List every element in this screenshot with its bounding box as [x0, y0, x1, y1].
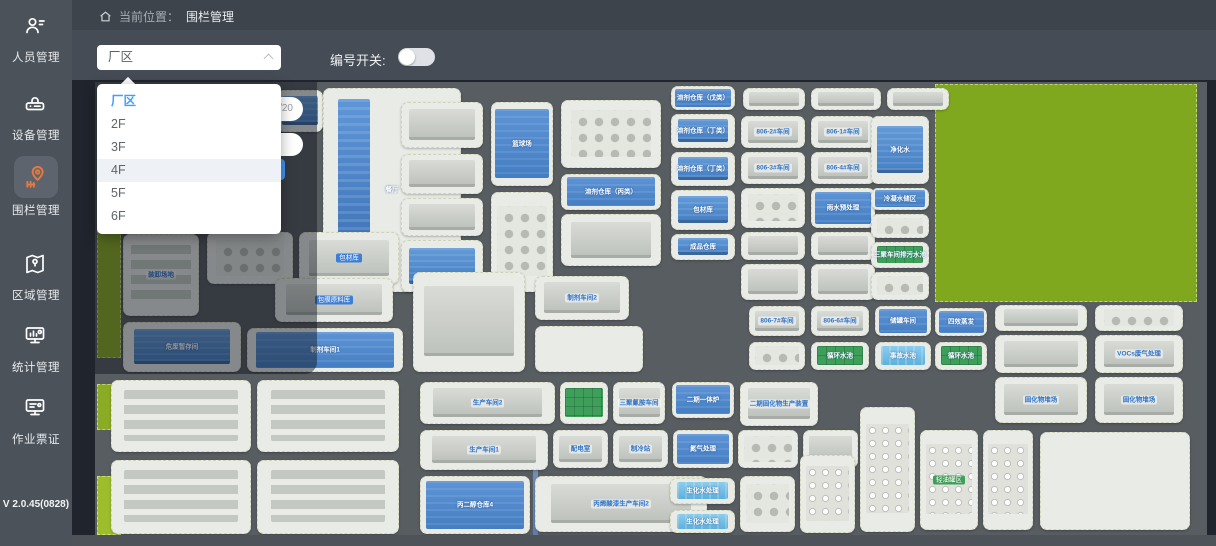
building	[497, 206, 546, 277]
building	[755, 311, 799, 331]
building	[877, 246, 923, 263]
building	[939, 311, 984, 333]
building	[815, 192, 871, 224]
building	[746, 484, 789, 523]
map-plot[interactable]	[740, 476, 795, 532]
building	[1004, 341, 1078, 367]
building	[677, 482, 729, 499]
map-plot[interactable]	[860, 407, 915, 532]
building	[675, 89, 731, 108]
map-plot-806-2#车间[interactable]: 806-2#车间	[741, 116, 805, 148]
sidebar-item-label: 统计管理	[0, 359, 72, 375]
building	[271, 390, 386, 440]
map-plot[interactable]	[257, 380, 399, 452]
building	[565, 388, 603, 417]
map-plot[interactable]	[995, 305, 1087, 331]
map-plot-储罐车间[interactable]: 储罐车间	[875, 306, 931, 336]
map-plot[interactable]	[561, 214, 661, 266]
building	[941, 346, 982, 365]
map-plot[interactable]	[1040, 432, 1190, 530]
number-switch-label: 编号开关:	[330, 50, 386, 69]
stats-monitor-icon	[23, 324, 49, 350]
building	[817, 311, 863, 331]
building	[1104, 384, 1175, 416]
building	[818, 157, 869, 179]
floor-dropdown-menu: 厂区2F3F4F5F6F	[97, 84, 281, 234]
dropdown-option-5F[interactable]: 5F	[97, 182, 281, 205]
building	[677, 514, 729, 529]
map-plot-成品仓库[interactable]: 成品仓库	[671, 234, 735, 260]
sidebar-item-统计管理[interactable]: 统计管理	[0, 324, 72, 375]
building	[1004, 384, 1078, 416]
map-plot-溶剂仓库（戊类）[interactable]: 溶剂仓库（戊类）	[671, 86, 735, 110]
dropdown-option-厂区[interactable]: 厂区	[97, 90, 281, 113]
building	[678, 196, 729, 223]
building	[619, 436, 662, 462]
map-plot-循环水池[interactable]: 循环水池	[811, 342, 869, 370]
map-plot[interactable]	[887, 88, 949, 110]
building	[875, 190, 925, 207]
sidebar-item-label: 区域管理	[0, 287, 72, 303]
fence-pin-icon	[23, 164, 49, 190]
sidebar-item-围栏管理[interactable]: 围栏管理	[0, 156, 72, 218]
map-plot[interactable]	[401, 198, 483, 236]
building	[881, 346, 925, 365]
building	[1104, 341, 1175, 367]
map-plot-轻油罐区[interactable]: 轻油罐区	[920, 430, 978, 530]
sidebar-item-label: 围栏管理	[0, 202, 72, 218]
map-plot[interactable]	[111, 380, 251, 452]
breadcrumb-prefix: 当前位置：	[119, 8, 179, 25]
building	[748, 194, 799, 221]
map-plot[interactable]	[1095, 305, 1183, 331]
building	[678, 238, 729, 255]
map-plot[interactable]	[871, 214, 929, 238]
building	[748, 236, 799, 255]
building	[818, 121, 869, 143]
map-plot-制剂车间2[interactable]: 制剂车间2	[535, 276, 629, 320]
building	[877, 126, 923, 174]
device-icon	[23, 92, 49, 118]
map-plot[interactable]	[741, 188, 805, 228]
map-plot-二期固化物生产装置[interactable]: 二期固化物生产装置	[740, 382, 818, 426]
version-label: V 2.0.45(0828)	[0, 499, 72, 510]
building	[818, 236, 869, 255]
sidebar-item-人员管理[interactable]: 人员管理	[0, 14, 72, 65]
dropdown-option-6F[interactable]: 6F	[97, 205, 281, 228]
building	[676, 385, 730, 414]
map-plot-氮气处理[interactable]: 氮气处理	[673, 430, 733, 468]
map-plot-包材库[interactable]: 包材库	[671, 190, 735, 230]
active-item-tile	[14, 156, 58, 198]
number-toggle-switch[interactable]	[398, 48, 435, 66]
map-plot-雨水预处理[interactable]: 雨水预处理	[811, 188, 875, 228]
person-icon	[23, 14, 49, 40]
building	[571, 110, 651, 158]
building	[124, 470, 237, 522]
map-plot-丙二醇仓库4[interactable]: 丙二醇仓库4	[420, 476, 530, 534]
map-plot[interactable]	[111, 460, 251, 534]
map-plot-生产车间1[interactable]: 生产车间1	[420, 430, 548, 470]
map-plot[interactable]	[811, 88, 881, 110]
building	[748, 269, 799, 294]
map-plot-806-7#车间[interactable]: 806-7#车间	[749, 306, 805, 336]
map-plot-生产车间2[interactable]: 生产车间2	[420, 382, 555, 424]
map-plot-二期一体炉[interactable]: 二期一体炉	[672, 382, 734, 418]
building	[309, 240, 389, 276]
map-plot-固化物堆场[interactable]: 固化物堆场	[1095, 377, 1183, 423]
building	[619, 388, 660, 417]
sidebar-item-label: 设备管理	[0, 127, 72, 143]
building	[495, 109, 549, 179]
dropdown-option-4F[interactable]: 4F	[97, 159, 281, 182]
building	[678, 157, 729, 180]
top-bar: 当前位置： 围栏管理 厂区 编号开关:	[72, 0, 1216, 80]
building	[806, 466, 849, 521]
building	[409, 204, 475, 230]
map-plot[interactable]	[800, 455, 855, 533]
toggle-knob	[399, 49, 415, 65]
map-plot-溶剂仓库（丁类）[interactable]: 溶剂仓库（丁类）	[671, 152, 735, 186]
building	[567, 177, 655, 206]
map-plot[interactable]	[811, 264, 875, 300]
sidebar-item-设备管理[interactable]: 设备管理	[0, 92, 72, 143]
map-plot[interactable]	[401, 102, 483, 148]
map-plot-溶剂仓库（丙类）[interactable]: 溶剂仓库（丙类）	[561, 174, 661, 210]
building	[1004, 309, 1078, 326]
building	[571, 222, 651, 258]
map-area-icon	[23, 252, 49, 278]
breadcrumb: 当前位置： 围栏管理	[99, 8, 234, 24]
map-plot[interactable]	[983, 430, 1033, 530]
map-plot[interactable]	[811, 232, 875, 260]
map-plot-VOCs废气处理[interactable]: VOCs废气处理	[1095, 335, 1183, 373]
map-plot[interactable]	[535, 326, 643, 372]
grass-area	[935, 84, 1197, 302]
building	[409, 160, 475, 187]
map-bottom-strip	[72, 535, 1216, 546]
map-plot[interactable]	[871, 272, 929, 300]
building	[559, 436, 602, 462]
map-plot[interactable]	[561, 100, 661, 168]
building	[755, 346, 799, 365]
map-plot[interactable]	[741, 264, 805, 300]
dropdown-option-2F[interactable]: 2F	[97, 113, 281, 136]
sidebar-item-label: 人员管理	[0, 49, 72, 65]
map-plot[interactable]	[995, 335, 1087, 373]
building	[893, 92, 942, 106]
building	[748, 388, 810, 418]
sidebar-item-label: 作业票证	[0, 431, 72, 447]
map-plot-三聚氰胺车间[interactable]: 三聚氰胺车间	[613, 382, 665, 424]
building	[749, 92, 798, 106]
map-plot-循环水池[interactable]: 循环水池	[935, 342, 987, 370]
building	[817, 346, 863, 365]
map-plot[interactable]	[741, 232, 805, 260]
map-plot-事故水池[interactable]: 事故水池	[875, 342, 931, 370]
chevron-up-icon	[264, 54, 274, 64]
building	[424, 286, 514, 357]
building	[271, 470, 386, 522]
map-plot[interactable]	[560, 382, 608, 424]
building	[879, 309, 928, 333]
map-plot-806-1#车间[interactable]: 806-1#车间	[811, 116, 875, 148]
sidebar-item-区域管理[interactable]: 区域管理	[0, 252, 72, 303]
breadcrumb-current: 围栏管理	[186, 8, 234, 25]
floor-select-value: 厂区	[108, 50, 133, 64]
map-plot-溶剂仓库（丁类）[interactable]: 溶剂仓库（丁类）	[671, 114, 735, 148]
breadcrumb-row	[72, 0, 1216, 30]
map-plot[interactable]	[749, 342, 805, 370]
building	[678, 119, 729, 142]
map-plot-生化水处理[interactable]: 生化水处理	[670, 478, 735, 504]
building	[818, 269, 869, 294]
building	[866, 424, 909, 513]
map-plot-制冷站[interactable]: 制冷站	[613, 430, 668, 468]
building	[426, 481, 523, 529]
map-plot-806-4#车间[interactable]: 806-4#车间	[811, 152, 875, 184]
map-plot-净化水[interactable]: 净化水	[871, 116, 929, 184]
building	[748, 157, 799, 179]
building	[409, 109, 475, 141]
dropdown-option-3F[interactable]: 3F	[97, 136, 281, 159]
map-plot[interactable]	[257, 460, 399, 534]
building	[744, 436, 792, 462]
map-plot-806-6#车间[interactable]: 806-6#车间	[811, 306, 869, 336]
building	[877, 218, 923, 234]
building	[988, 444, 1027, 515]
map-plot-篮球场[interactable]: 篮球场	[491, 102, 553, 186]
map-plot-四效蒸发[interactable]: 四效蒸发	[935, 308, 987, 336]
permit-monitor-icon	[23, 396, 49, 422]
map-plot[interactable]	[401, 154, 483, 194]
map-plot-生化水处理[interactable]: 生化水处理	[670, 510, 735, 533]
building	[544, 282, 619, 312]
sidebar: 人员管理设备管理围栏管理区域管理统计管理作业票证 V 2.0.45(0828)	[0, 0, 72, 546]
map-plot[interactable]	[413, 272, 525, 372]
map-plot[interactable]	[738, 430, 798, 468]
building	[124, 390, 237, 440]
building	[677, 434, 729, 465]
sidebar-item-作业票证[interactable]: 作业票证	[0, 396, 72, 447]
map-plot-配电室[interactable]: 配电室	[553, 430, 608, 468]
building	[877, 276, 923, 295]
map-plot-三聚车间排污水池[interactable]: 三聚车间排污水池	[871, 242, 929, 268]
building	[433, 388, 542, 417]
building	[1104, 309, 1175, 326]
map-plot-冷凝水储区[interactable]: 冷凝水储区	[871, 188, 929, 210]
building	[338, 99, 371, 234]
map-plot-固化物堆场[interactable]: 固化物堆场	[995, 377, 1087, 423]
building	[748, 121, 799, 143]
building	[818, 92, 874, 106]
map-plot[interactable]	[743, 88, 805, 110]
building	[432, 436, 535, 463]
building	[926, 444, 972, 515]
map-plot-806-3#车间[interactable]: 806-3#车间	[741, 152, 805, 184]
floor-select[interactable]: 厂区	[97, 45, 281, 70]
home-icon	[99, 10, 112, 23]
